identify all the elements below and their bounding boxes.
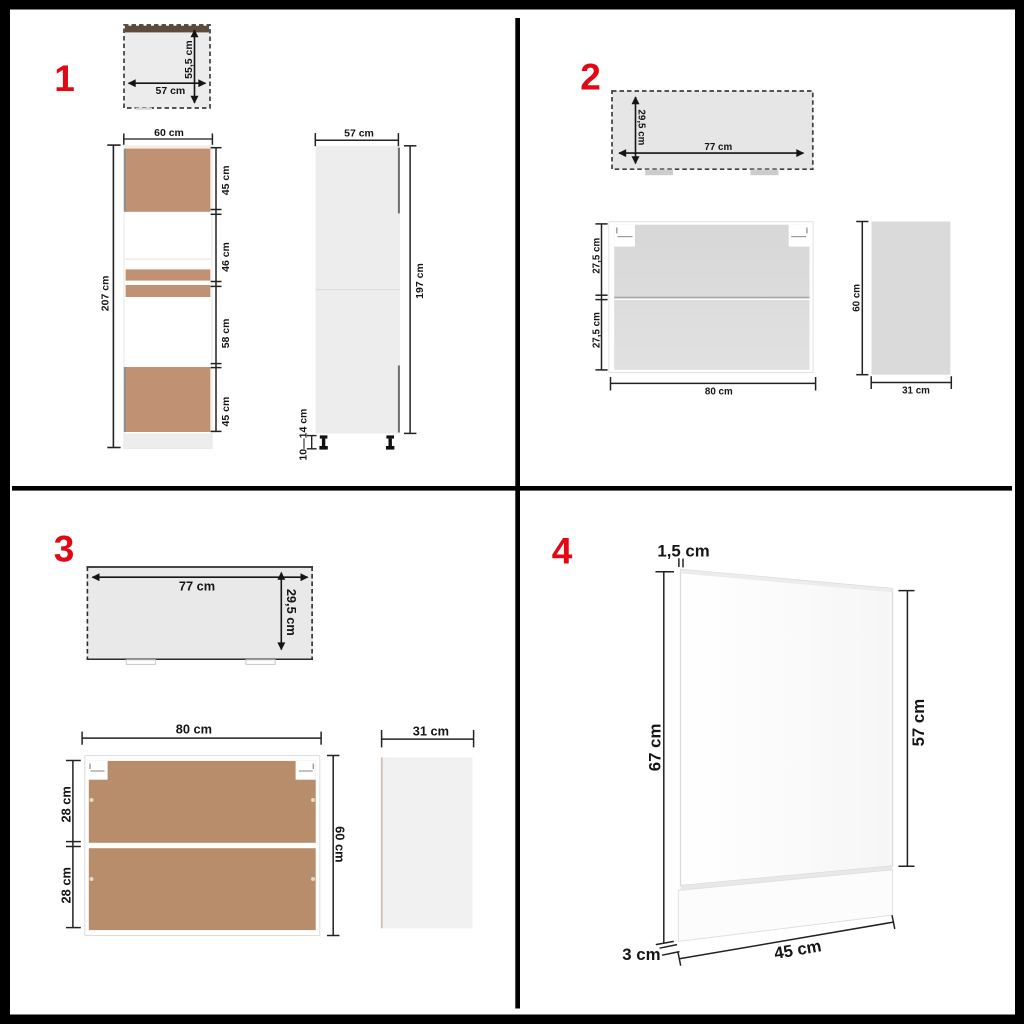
svg-text:1,5 cm: 1,5 cm bbox=[657, 541, 709, 560]
svg-text:10—14 cm: 10—14 cm bbox=[297, 409, 309, 461]
svg-text:80 cm: 80 cm bbox=[176, 722, 212, 737]
svg-text:4: 4 bbox=[552, 531, 573, 572]
svg-text:28 cm: 28 cm bbox=[59, 786, 74, 822]
svg-text:1: 1 bbox=[54, 58, 75, 99]
svg-text:27,5 cm: 27,5 cm bbox=[591, 312, 602, 348]
svg-text:45 cm: 45 cm bbox=[220, 397, 232, 427]
svg-text:29,5 cm: 29,5 cm bbox=[636, 109, 647, 145]
svg-text:197 cm: 197 cm bbox=[414, 263, 426, 299]
svg-text:60 cm: 60 cm bbox=[332, 826, 347, 862]
svg-text:60 cm: 60 cm bbox=[154, 127, 184, 139]
svg-text:31 cm: 31 cm bbox=[413, 723, 449, 738]
svg-text:28 cm: 28 cm bbox=[59, 867, 74, 903]
svg-text:57 cm: 57 cm bbox=[344, 127, 374, 139]
svg-text:55,5 cm: 55,5 cm bbox=[183, 40, 195, 79]
svg-text:80 cm: 80 cm bbox=[705, 386, 733, 397]
svg-text:60 cm: 60 cm bbox=[851, 284, 862, 312]
svg-text:67 cm: 67 cm bbox=[646, 724, 665, 772]
svg-text:29,5 cm: 29,5 cm bbox=[284, 589, 299, 636]
svg-text:2: 2 bbox=[580, 57, 601, 98]
svg-text:46 cm: 46 cm bbox=[220, 242, 232, 272]
svg-text:31 cm: 31 cm bbox=[902, 386, 930, 397]
svg-text:77 cm: 77 cm bbox=[179, 578, 215, 593]
svg-text:207 cm: 207 cm bbox=[99, 276, 111, 312]
svg-text:77 cm: 77 cm bbox=[704, 142, 732, 153]
svg-text:27,5 cm: 27,5 cm bbox=[591, 238, 602, 274]
svg-text:57 cm: 57 cm bbox=[156, 85, 186, 97]
svg-text:58 cm: 58 cm bbox=[220, 319, 232, 349]
svg-text:3: 3 bbox=[54, 529, 75, 570]
svg-text:3 cm: 3 cm bbox=[622, 945, 660, 964]
svg-text:57 cm: 57 cm bbox=[909, 699, 928, 747]
svg-text:45 cm: 45 cm bbox=[220, 165, 232, 195]
